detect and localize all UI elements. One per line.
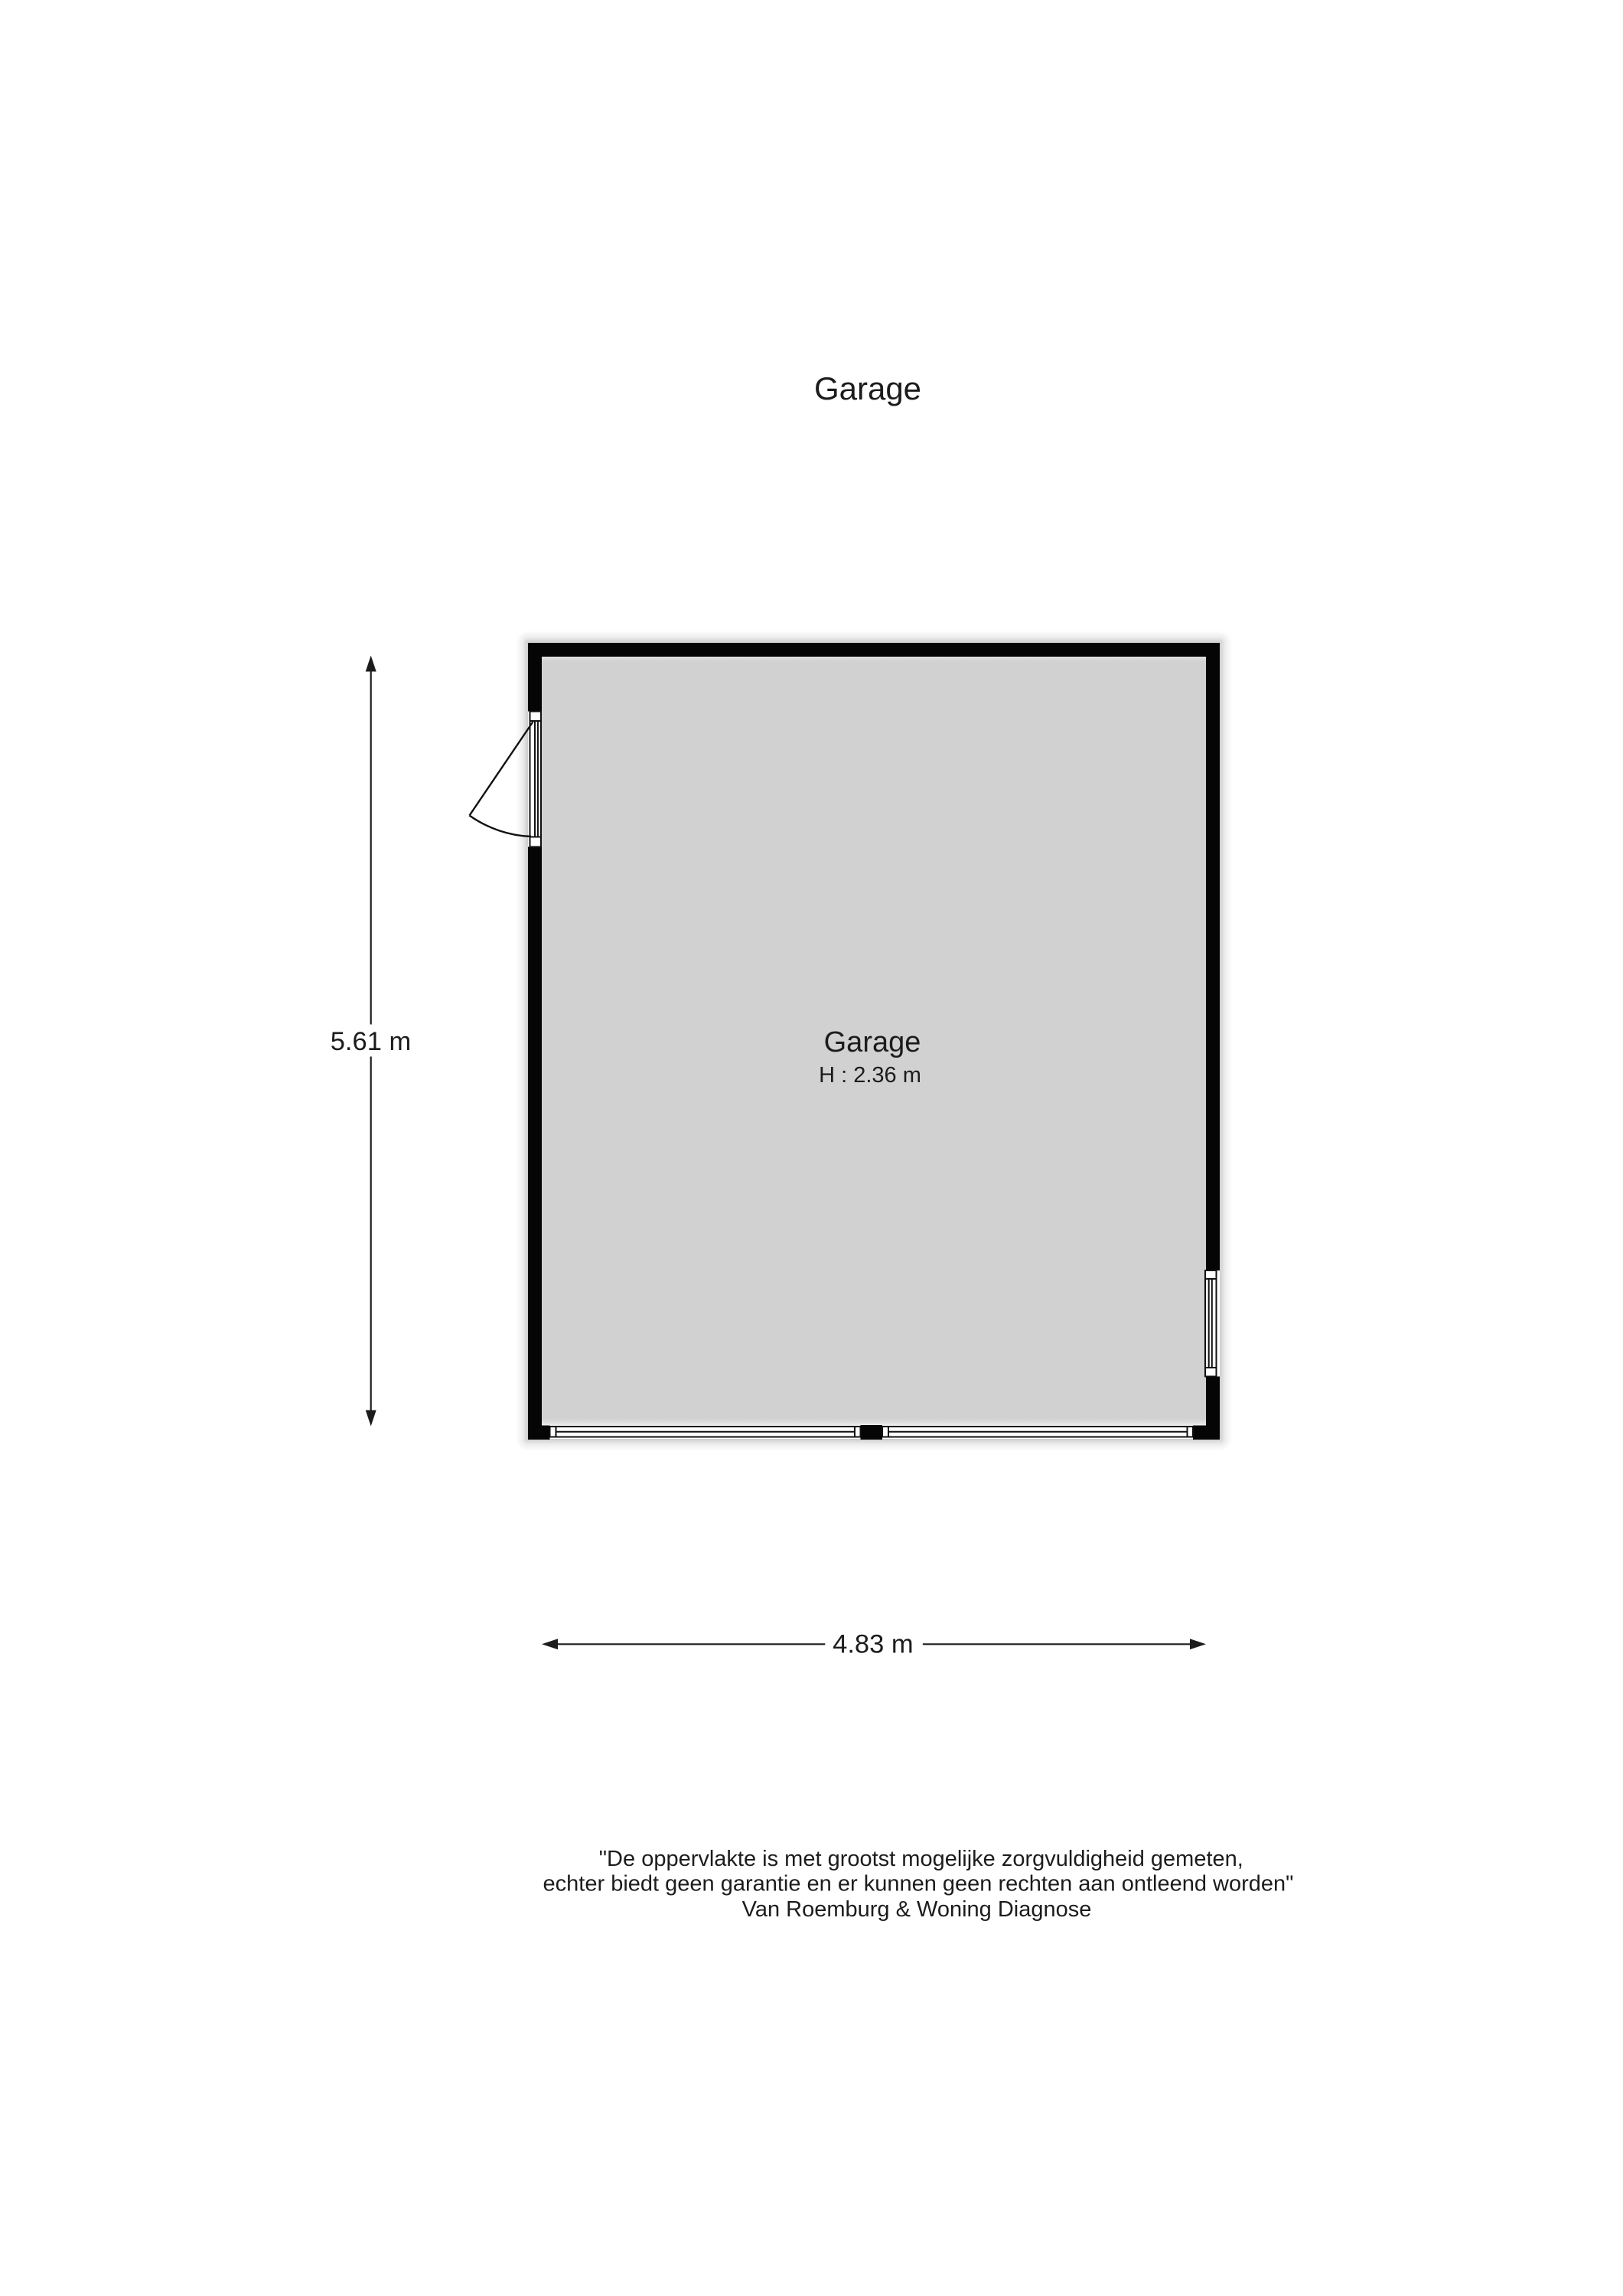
svg-text:5.61 m: 5.61 m xyxy=(331,1027,411,1056)
svg-text:"De oppervlakte is met grootst: "De oppervlakte is met grootst mogelijke… xyxy=(599,1847,1243,1871)
svg-text:Garage: Garage xyxy=(824,1026,921,1058)
svg-text:H : 2.36 m: H : 2.36 m xyxy=(819,1063,921,1088)
svg-text:Van Roemburg & Woning Diagnose: Van Roemburg & Woning Diagnose xyxy=(742,1897,1092,1922)
svg-text:4.83 m: 4.83 m xyxy=(833,1630,913,1659)
svg-text:echter biedt geen garantie en: echter biedt geen garantie en er kunnen … xyxy=(543,1872,1294,1896)
svg-text:Garage: Garage xyxy=(814,370,921,406)
